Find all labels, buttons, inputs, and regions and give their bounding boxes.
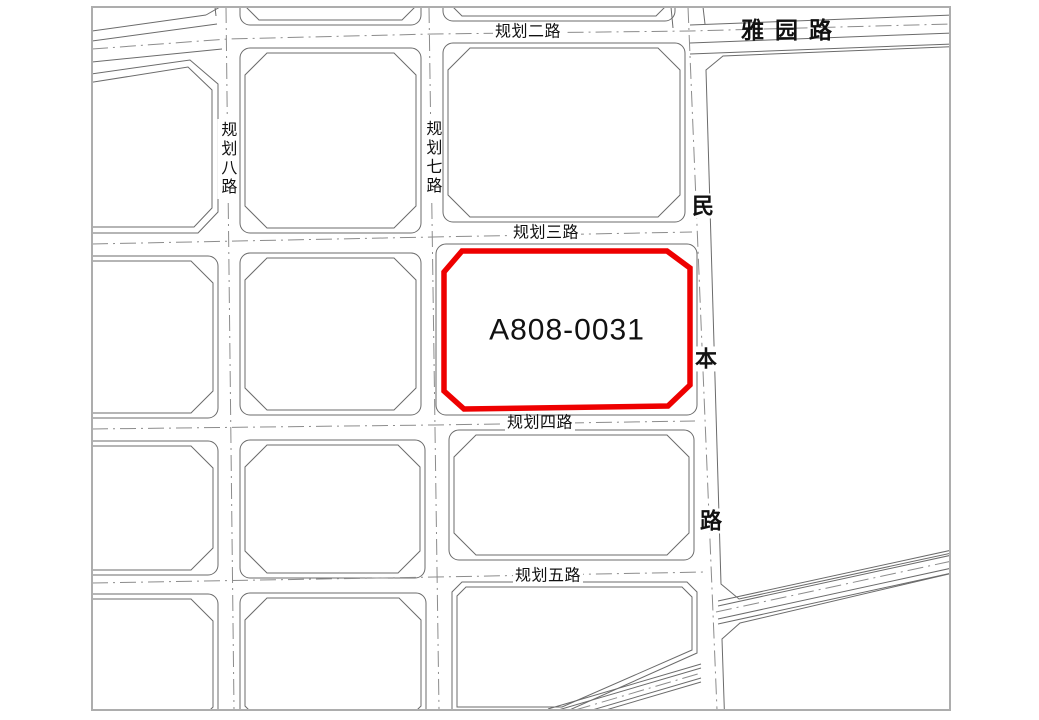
city-block xyxy=(443,43,685,222)
city-block xyxy=(240,440,425,578)
road-label-guihua2: 规划二路 xyxy=(493,25,563,42)
city-block xyxy=(443,0,675,21)
city-block xyxy=(240,48,421,233)
city-block xyxy=(706,46,970,599)
road-label-minben-char-2: 本 xyxy=(694,346,718,371)
road-label-guihua4: 规划四路 xyxy=(505,416,575,433)
road-label-guihua8: 规划八路 xyxy=(218,119,235,199)
road-label-minben-char-3: 路 xyxy=(699,508,723,533)
city-block xyxy=(452,582,697,712)
road-label-guihua7: 规划七路 xyxy=(423,118,440,198)
city-block xyxy=(60,256,218,418)
road-label-guihua3: 规划三路 xyxy=(511,226,581,243)
city-block xyxy=(240,253,421,415)
city-block xyxy=(60,594,218,720)
parcel-location-map: 规划二路 雅园路 规划八路 规划七路 规划三路 A808-0031 民 本 路 … xyxy=(0,0,1039,720)
road-label-yayuan: 雅园路 xyxy=(741,18,843,42)
city-block xyxy=(240,0,421,25)
city-block xyxy=(449,430,694,560)
parcel-id-label: A808-0031 xyxy=(489,314,645,346)
road-label-guihua5: 规划五路 xyxy=(513,569,583,586)
city-block xyxy=(240,593,426,720)
road-label-minben-char-1: 民 xyxy=(691,193,715,218)
map-canvas xyxy=(0,0,1039,720)
city-block xyxy=(60,441,218,575)
